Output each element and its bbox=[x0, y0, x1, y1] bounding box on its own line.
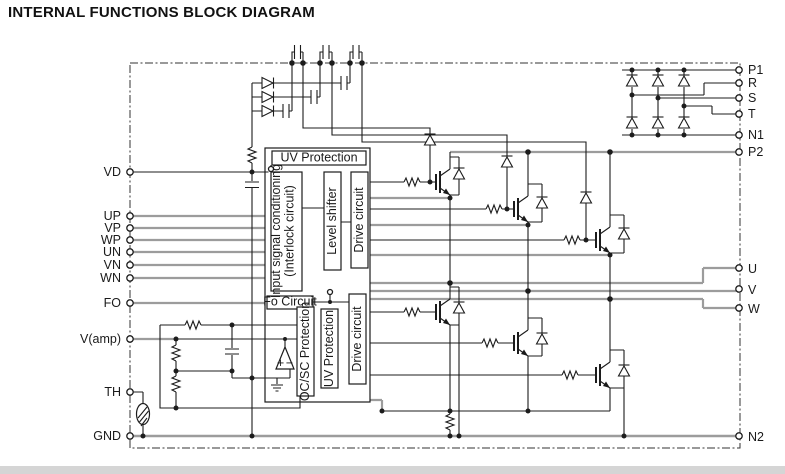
resistor-icon bbox=[248, 147, 256, 163]
upper-gate-wires bbox=[370, 182, 596, 240]
igbt-gate-bars bbox=[436, 174, 596, 383]
bootstrap-cap-icon bbox=[320, 45, 332, 63]
pin-label: V bbox=[748, 283, 757, 297]
pin-vn bbox=[127, 262, 133, 268]
input-conditioning-label-1: Input signal conditioning bbox=[269, 164, 283, 298]
resistor-icon bbox=[404, 178, 420, 186]
u-output-wire bbox=[370, 268, 736, 283]
resistor-icon bbox=[564, 236, 580, 244]
pin-labels: VD UP VP WP UN VN WN FO V(amp) TH GND P1… bbox=[80, 63, 764, 444]
diode-icon bbox=[262, 78, 274, 89]
pin-label: VN bbox=[104, 258, 121, 272]
igbt-upper-w-wires bbox=[600, 152, 624, 299]
bridge-diode-icon bbox=[679, 75, 690, 86]
ocsc-protection-label: OC/SC Protection bbox=[298, 302, 312, 401]
igbt-upper-u-wires bbox=[440, 152, 459, 283]
rectifier-bridge-wires bbox=[622, 70, 736, 135]
drive-circuit-upper-label: Drive circuit bbox=[352, 187, 366, 253]
gray-wires bbox=[130, 152, 736, 436]
pin-t bbox=[736, 111, 742, 117]
pin-label: TH bbox=[104, 385, 121, 399]
lower-gate-wires bbox=[370, 312, 596, 375]
pin-vamp bbox=[127, 336, 133, 342]
igbt-body-bars bbox=[440, 171, 600, 386]
shunt-resistor-icon bbox=[446, 414, 454, 430]
freewheel-diode-icon bbox=[454, 302, 465, 313]
arrow-icon bbox=[603, 382, 610, 389]
diode-icon bbox=[425, 134, 436, 145]
bridge-diode-icon bbox=[627, 75, 638, 86]
bridge-diode-icon bbox=[627, 117, 638, 128]
pin-label: N2 bbox=[748, 430, 764, 444]
black-wires bbox=[130, 63, 736, 436]
resistor-icon bbox=[486, 205, 502, 213]
resistor-icon bbox=[482, 339, 498, 347]
igbt-lower-v-wires bbox=[518, 291, 542, 411]
resistor-icon bbox=[172, 345, 180, 361]
input-signal-wires bbox=[130, 216, 265, 278]
emitter-return-wires bbox=[370, 198, 610, 255]
diode-icon bbox=[262, 106, 274, 117]
cap-icon bbox=[341, 76, 347, 90]
pin-wp bbox=[127, 237, 133, 243]
w-output-wire bbox=[370, 299, 736, 308]
pin-label: S bbox=[748, 91, 756, 105]
pin-s bbox=[736, 95, 742, 101]
footer-strip bbox=[0, 466, 785, 474]
freewheel-diode-icon bbox=[537, 333, 548, 344]
level-shifter-label: Level shifter bbox=[325, 187, 339, 254]
bootstrap-diodes bbox=[262, 78, 274, 117]
uv-protection-lower-label: UV Protection bbox=[322, 310, 336, 387]
comparator-minus: − bbox=[286, 356, 293, 370]
pin-un bbox=[127, 249, 133, 255]
thermistor-icon bbox=[137, 404, 150, 427]
arrow-icon bbox=[603, 247, 610, 254]
diode-icon bbox=[581, 192, 592, 203]
pin-n1 bbox=[736, 132, 742, 138]
pin-up bbox=[127, 213, 133, 219]
bridge-diode-icon bbox=[653, 117, 664, 128]
igbt-upper-v-wires bbox=[518, 152, 542, 291]
comparator-plus: + bbox=[277, 356, 284, 370]
pin-label: P2 bbox=[748, 145, 763, 159]
pin-label: W bbox=[748, 302, 760, 316]
pin-w bbox=[736, 305, 742, 311]
cap-icon bbox=[283, 104, 289, 118]
filter-cap-icon bbox=[225, 349, 239, 354]
diode-icon bbox=[502, 156, 513, 167]
freewheel-diode-icon bbox=[619, 228, 630, 239]
pin-gnd bbox=[127, 433, 133, 439]
resistor-icon bbox=[185, 321, 201, 329]
arrow-icon bbox=[521, 216, 528, 223]
resistor-icons bbox=[172, 147, 580, 430]
bridge-diode-icon bbox=[653, 75, 664, 86]
igbt-emitter-arrows bbox=[443, 189, 610, 389]
pin-label: GND bbox=[93, 429, 121, 443]
block-diagram: + − bbox=[0, 0, 785, 474]
resistor-icon bbox=[562, 371, 578, 379]
igbt-lower-w-wires bbox=[600, 299, 624, 436]
uv-protection-top-label: UV Protection bbox=[280, 151, 357, 165]
pin-n2 bbox=[736, 433, 742, 439]
pin-vp bbox=[127, 225, 133, 231]
divider-wires bbox=[176, 339, 232, 408]
pin-p1 bbox=[736, 67, 742, 73]
pin-label: R bbox=[748, 76, 757, 90]
bootstrap-cap-icon bbox=[350, 45, 362, 63]
arrow-icon bbox=[521, 350, 528, 357]
pin-label: V(amp) bbox=[80, 332, 121, 346]
pin-label: VD bbox=[104, 165, 121, 179]
bridge-diode-icon bbox=[679, 117, 690, 128]
port-circle-icon bbox=[328, 290, 333, 295]
freewheel-diode-icon bbox=[619, 365, 630, 376]
input-conditioning-label-2: (Interlock circuit) bbox=[283, 185, 297, 277]
resistor-icon bbox=[404, 308, 420, 316]
cap-icon bbox=[311, 90, 317, 104]
pin-label: T bbox=[748, 107, 756, 121]
resistor-icon bbox=[172, 376, 180, 392]
pin-label: U bbox=[748, 262, 757, 276]
bootstrap-cap-icon bbox=[292, 45, 303, 63]
drive-circuit-lower-label: Drive circuit bbox=[350, 306, 364, 372]
pin-label: N1 bbox=[748, 128, 764, 142]
pin-r bbox=[736, 80, 742, 86]
freewheel-diode-icon bbox=[454, 168, 465, 179]
pin-p2 bbox=[736, 149, 742, 155]
pin-label: FO bbox=[104, 296, 122, 310]
screenshot: INTERNAL FUNCTIONS BLOCK DIAGRAM bbox=[0, 0, 785, 474]
pin-v bbox=[736, 286, 742, 292]
pin-vd bbox=[127, 169, 133, 175]
pin-u bbox=[736, 265, 742, 271]
pin-label: P1 bbox=[748, 63, 763, 77]
pin-label: UN bbox=[103, 245, 121, 259]
freewheel-diode-icon bbox=[537, 197, 548, 208]
pin-wn bbox=[127, 275, 133, 281]
bootstrap-diode-wires bbox=[252, 63, 350, 111]
arrow-icon bbox=[443, 189, 450, 196]
pin-fo bbox=[127, 300, 133, 306]
pin-label: WN bbox=[100, 271, 121, 285]
diode-icon bbox=[262, 92, 274, 103]
arrow-icon bbox=[443, 319, 450, 326]
pin-th bbox=[127, 389, 133, 395]
vd-cap-icon bbox=[245, 182, 259, 188]
